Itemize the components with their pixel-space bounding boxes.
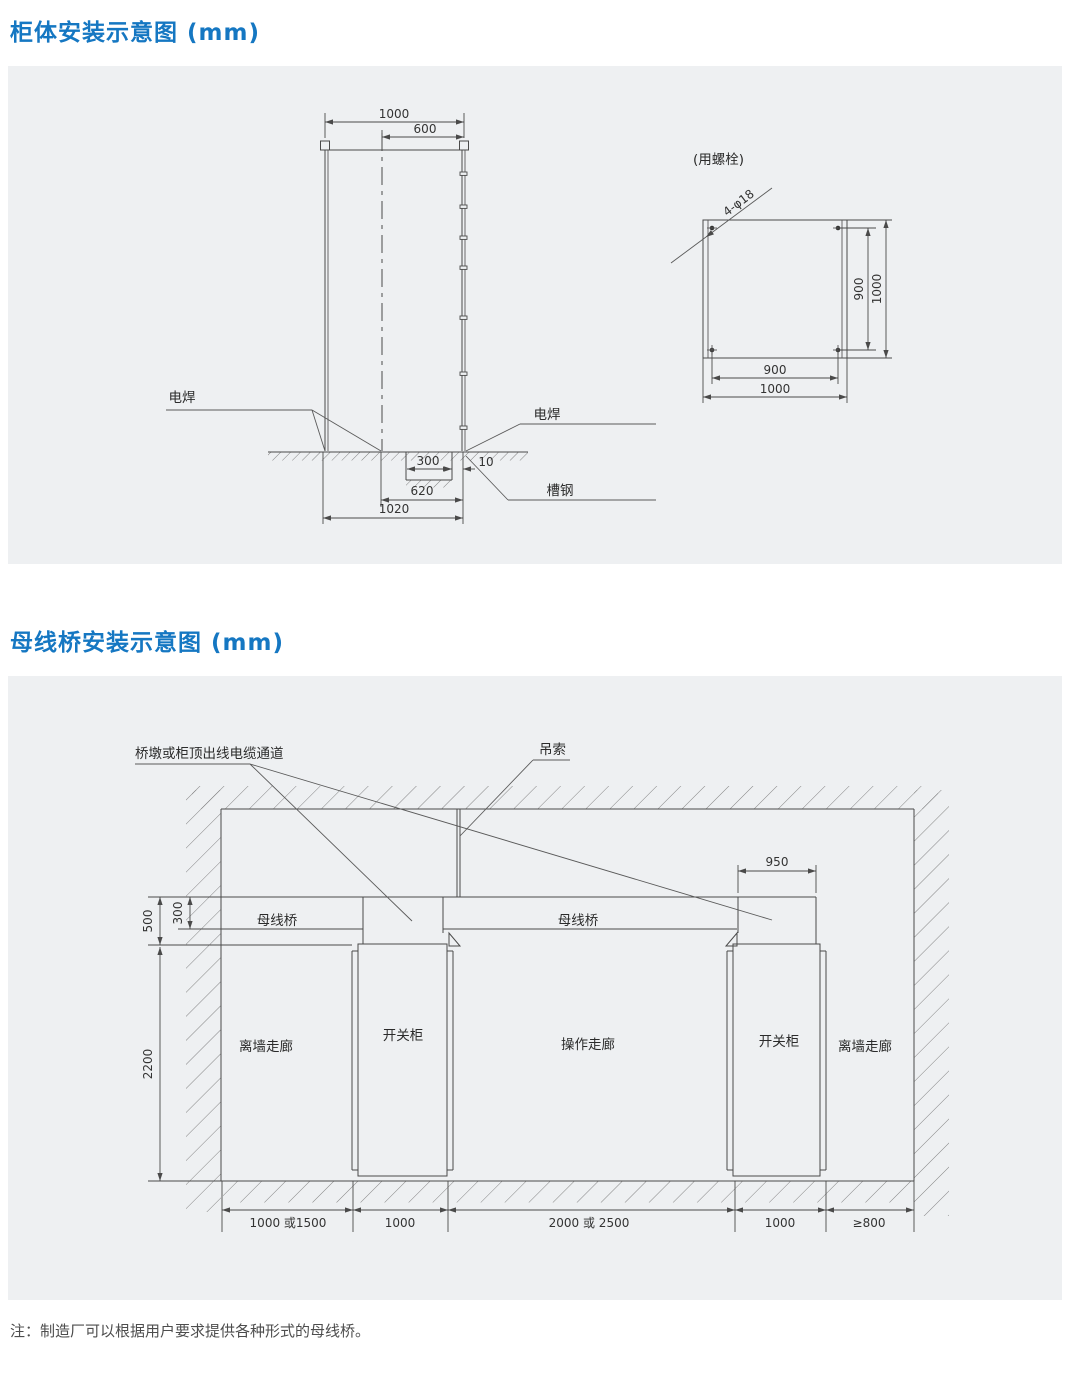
dim-edge-gap: 10 xyxy=(478,455,493,469)
dim-center-to-edge: 620 xyxy=(411,484,434,498)
hanger-rod xyxy=(457,809,460,897)
dim-cabinet-height: 2200 xyxy=(141,1049,155,1080)
dim-front-width: 1000 xyxy=(379,107,410,121)
dim-span-5: ≥800 xyxy=(853,1216,886,1230)
floor-hatch xyxy=(223,1182,912,1203)
cabinet-right-edge-ticks xyxy=(460,172,467,429)
bolt-holes xyxy=(707,226,843,355)
cabinet-plan-view: (用螺栓) 4-φ18 900 100 xyxy=(671,152,892,403)
dim-plan-width: 1000 xyxy=(760,382,791,396)
dim-riser-width: 950 xyxy=(766,855,789,869)
label-bolt-method: (用螺栓) xyxy=(693,152,744,168)
dim-recess-width: 300 xyxy=(417,454,440,468)
weld-callout-left: 电焊 xyxy=(166,390,381,451)
dim-plan-bolt-spacing-h: 900 xyxy=(764,363,787,377)
dim-span-2: 1000 xyxy=(385,1216,416,1230)
ceiling-hatch xyxy=(192,786,938,809)
label-corridor-center: 操作走廊 xyxy=(561,1036,615,1053)
label-corridor-left: 离墙走廊 xyxy=(239,1038,293,1055)
label-corridor-right: 离墙走廊 xyxy=(838,1038,892,1055)
label-weld-left: 电焊 xyxy=(169,390,196,406)
dim-base-span: 1020 xyxy=(379,502,410,516)
left-wall-hatch xyxy=(186,790,221,1212)
cable-channel-callout: 桥墩或柜顶出线电缆通道 xyxy=(135,746,772,921)
switchgear-right xyxy=(727,944,826,1176)
weld-callout-right: 电焊 xyxy=(466,407,656,451)
dim-plan-bolt-spacing-v: 900 xyxy=(852,278,866,301)
technical-drawing-canvas: 1000 600 xyxy=(0,0,1070,1373)
dim-bridge-drop: 500 xyxy=(141,910,155,933)
dim-span-4: 1000 xyxy=(765,1216,796,1230)
dim-span-3: 2000 或 2500 xyxy=(549,1216,630,1230)
label-cable-channel: 桥墩或柜顶出线电缆通道 xyxy=(135,746,284,762)
cabinet-front-view: 1000 600 xyxy=(166,107,656,524)
busbar-bridge xyxy=(221,897,816,944)
left-cabinet-wedge xyxy=(449,933,460,946)
switchgear-left xyxy=(352,944,453,1176)
right-wall-hatch xyxy=(914,790,949,1216)
label-channel-steel: 槽钢 xyxy=(547,483,574,499)
label-bridge-left: 母线桥 xyxy=(257,913,298,929)
dim-center-to-right: 600 xyxy=(414,122,437,136)
bolt-holes-callout: 4-φ18 xyxy=(671,187,772,263)
busbar-room-section: 母线桥 母线桥 离墙走廊 开关柜 操作走廊 开关柜 xyxy=(135,742,949,1232)
label-bridge-right: 母线桥 xyxy=(558,913,599,929)
cabinet-lift-tab-left xyxy=(321,141,330,150)
label-cabinet-left: 开关柜 xyxy=(383,1028,424,1044)
dim-plan-depth: 1000 xyxy=(870,274,884,305)
dim-span-1: 1000 或1500 xyxy=(250,1216,327,1230)
channel-steel-callout: 槽钢 xyxy=(466,456,656,500)
label-weld-right: 电焊 xyxy=(534,407,561,423)
cabinet-lift-tab-right xyxy=(460,141,469,150)
label-sling: 吊索 xyxy=(539,742,566,758)
label-cabinet-right: 开关柜 xyxy=(759,1034,800,1050)
catalog-page: { "page": { "accent_color": "#1577c2", "… xyxy=(0,0,1070,1373)
dim-bridge-height: 300 xyxy=(171,902,185,925)
